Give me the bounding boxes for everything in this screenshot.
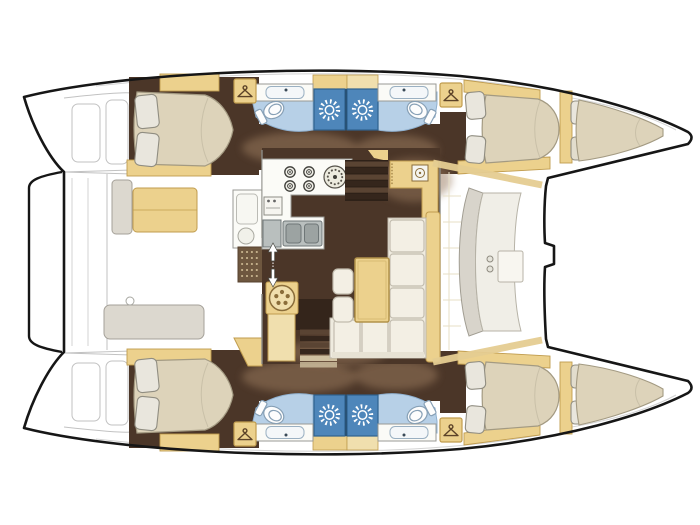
stair-step [345, 194, 388, 199]
round-hotplate [324, 166, 346, 188]
lounge-table-insert [498, 251, 523, 282]
burner-icon [304, 167, 314, 177]
sofa-cushion [362, 320, 388, 356]
cup-holder [487, 256, 493, 262]
appliance-round-door [270, 286, 295, 311]
door-hole [286, 294, 290, 298]
door-hole [283, 301, 287, 305]
locker-above-shower [313, 75, 347, 90]
fwd-cabin-bulkhead [560, 91, 572, 163]
sofa-cushion [390, 254, 424, 286]
cup-holder [487, 266, 493, 272]
pillow [465, 135, 486, 164]
oven-knob [273, 200, 276, 203]
fwd-cabin-double-berth [482, 95, 559, 163]
sofa-cushion [390, 220, 424, 252]
dining-table [355, 258, 389, 322]
nav-instrument-dot [419, 172, 421, 174]
stair-step [345, 175, 388, 180]
faucet [403, 89, 406, 92]
sofa-cushion [390, 320, 424, 356]
shower-stall [314, 89, 345, 130]
pillow [134, 94, 159, 129]
galley-drainer [263, 220, 281, 247]
lower-cabinet [268, 314, 295, 361]
aft-locker-bench [104, 305, 204, 339]
stair-step [345, 168, 388, 173]
stool-cushion [333, 297, 353, 322]
sofa-backrest [426, 212, 440, 362]
wardrobe-hanger-icon [440, 418, 462, 442]
catamaran-floorplan [0, 0, 700, 525]
cockpit-bench-back [112, 180, 132, 234]
burner-icon [304, 181, 314, 191]
wardrobe-hanger-icon [234, 79, 256, 103]
pillow [134, 132, 159, 167]
aft-crossbeam [29, 172, 62, 352]
salon [262, 148, 452, 368]
faucet [285, 89, 288, 92]
stool-cushion [333, 269, 353, 294]
pillow [465, 91, 486, 120]
sofa-cushion [334, 320, 360, 356]
door-hole [274, 294, 278, 298]
stair-step [345, 162, 388, 167]
wet-bar-sink [238, 228, 254, 244]
sink-bowl [286, 224, 301, 243]
wardrobe-hanger-icon [440, 83, 462, 107]
burner-icon [285, 167, 295, 177]
wardrobe-hanger-icon [234, 422, 256, 446]
floorplan-canvas [0, 0, 700, 525]
door-hole [276, 301, 280, 305]
sink-bowl [305, 224, 319, 243]
wet-bar-tray [237, 194, 258, 224]
oven-knob [267, 200, 270, 203]
stair-step [300, 362, 337, 368]
locker-above-shower [347, 75, 378, 90]
stair-step [345, 181, 388, 186]
sofa-cushion [390, 288, 424, 318]
oven [264, 197, 282, 215]
wash-basin [390, 87, 428, 99]
burner-icon [285, 181, 295, 191]
starboard-hull-interior [64, 349, 676, 451]
wash-basin [266, 87, 304, 99]
door-hole [280, 290, 284, 294]
sofa-front-edge [332, 352, 424, 358]
shower-stall [347, 89, 378, 130]
stair-step [345, 188, 388, 193]
